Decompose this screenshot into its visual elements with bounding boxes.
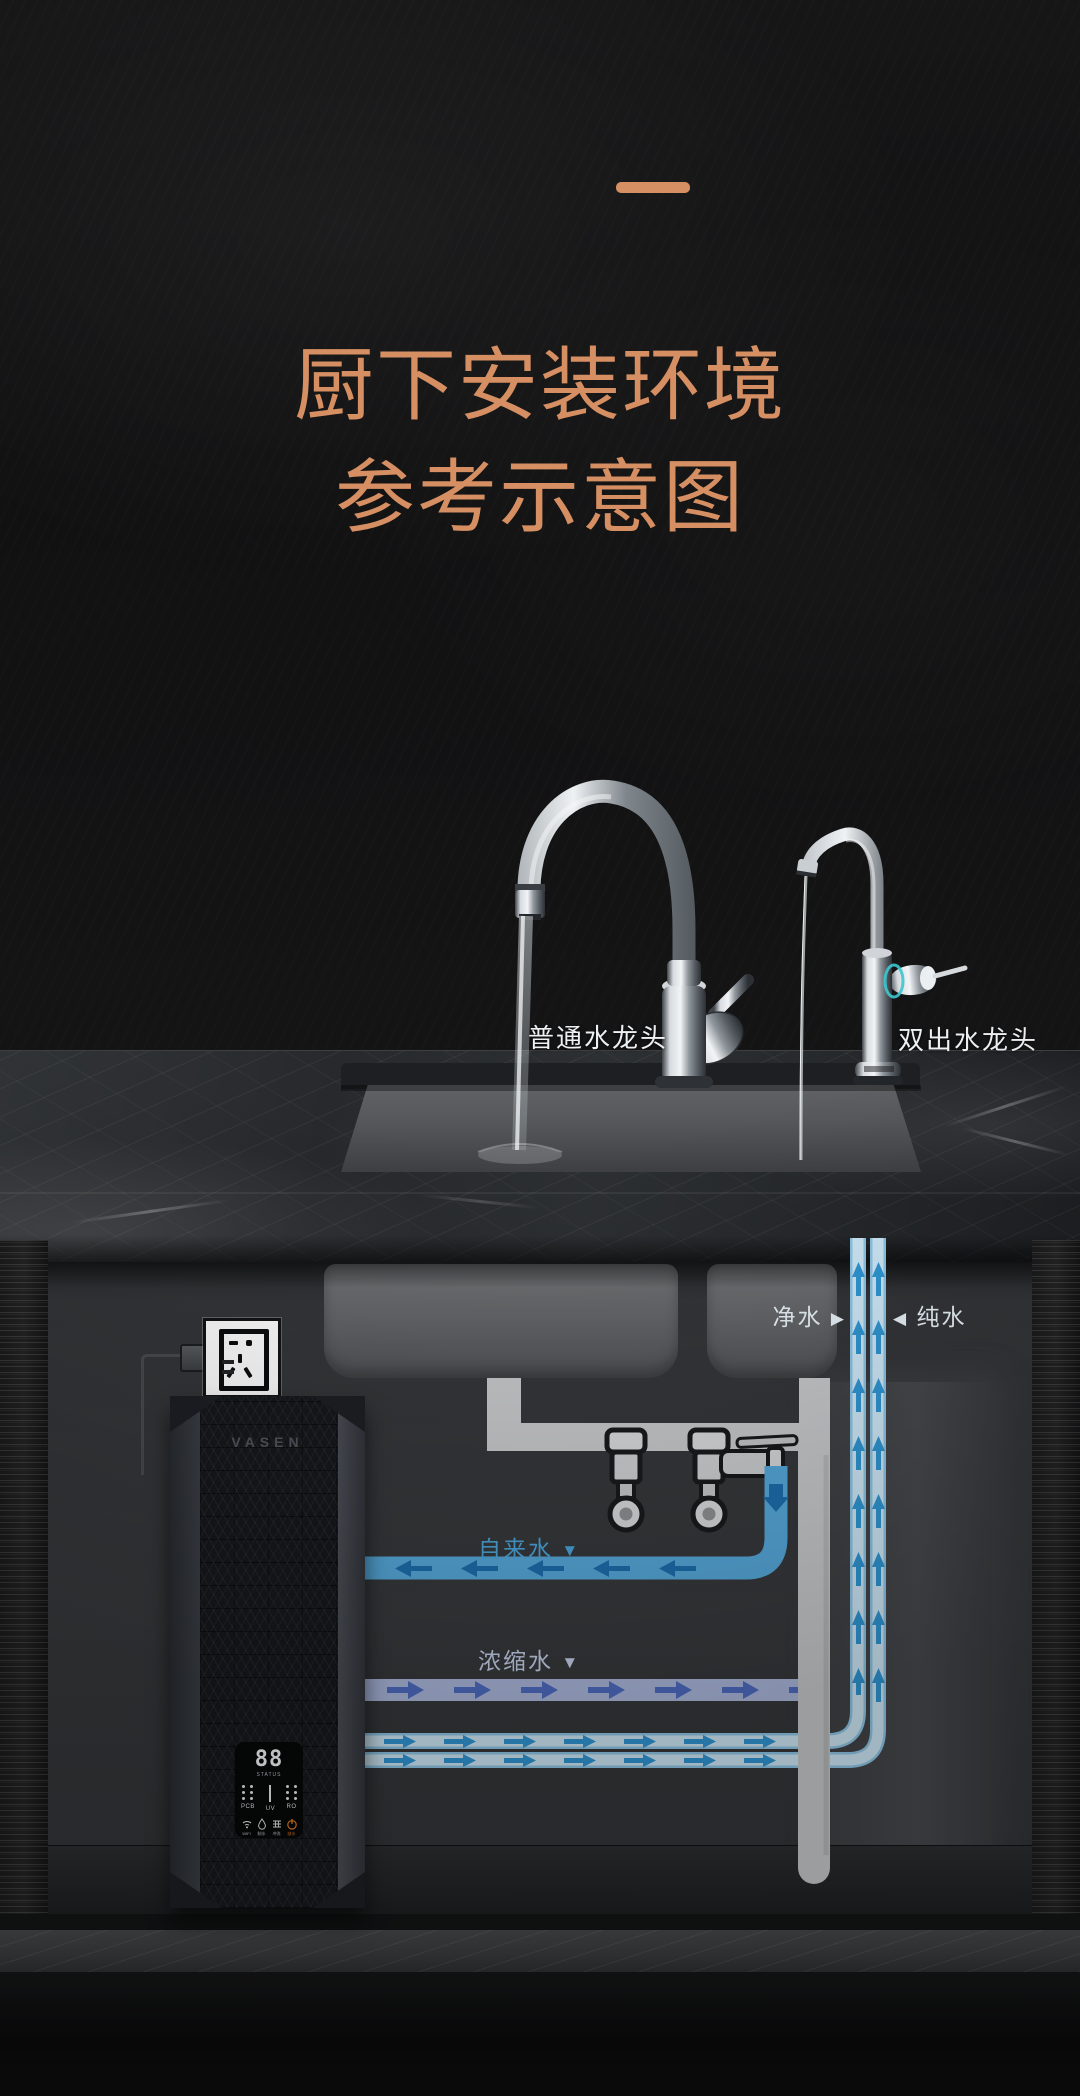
- status-make-water: 制水: [255, 1818, 268, 1837]
- indicator-pcb: PCB: [241, 1785, 255, 1812]
- label-tap-water: 自来水 ▼: [478, 1530, 580, 1564]
- indicator-uv: UV: [266, 1785, 275, 1812]
- purifier-left-bevel: [170, 1396, 200, 1908]
- pcb-dots: [242, 1785, 253, 1800]
- socket-faceplate: [219, 1329, 269, 1391]
- label-purified-water: 净水 ▶: [696, 1298, 846, 1332]
- uv-bar: [269, 1785, 271, 1802]
- water-purifier: VASEN 88 STATUS PCB UV RO: [170, 1396, 365, 1908]
- status-icon-row: WIFI 制水 冲洗 缺水: [240, 1818, 298, 1837]
- label-pure-water: ◀ 纯水: [893, 1298, 966, 1332]
- label-concentrate-water: 浓缩水 ▼: [478, 1642, 580, 1676]
- down-triangle-icon: ▼: [561, 1653, 580, 1672]
- display-caption: STATUS: [257, 1772, 282, 1778]
- status-alarm: 缺水: [285, 1818, 298, 1837]
- socket-hole: [246, 1340, 252, 1346]
- concentrate-pipe: [362, 1679, 812, 1701]
- down-triangle-icon: ▼: [561, 1541, 580, 1560]
- page: 厨下安装环境 参考示意图: [0, 0, 1080, 2096]
- faucet-connector-right: [690, 1430, 728, 1530]
- socket-hole: [238, 1354, 242, 1363]
- filter-icon: [271, 1818, 283, 1830]
- ro-dots: [286, 1785, 297, 1800]
- label-dual-faucet: 双出水龙头: [898, 1020, 1038, 1057]
- socket-hole: [243, 1367, 252, 1378]
- faucet-connector-left: [607, 1430, 645, 1530]
- water-stream-right: [800, 876, 806, 1160]
- alarm-icon: [286, 1818, 298, 1830]
- indicator-row: PCB UV RO: [241, 1785, 297, 1812]
- water-drop-icon: [256, 1818, 268, 1830]
- label-normal-faucet: 普通水龙头: [528, 1018, 668, 1055]
- left-triangle-icon: ◀: [893, 1309, 908, 1328]
- wall-socket: [203, 1318, 281, 1398]
- indicator-ro: RO: [286, 1785, 297, 1812]
- right-triangle-icon: ▶: [831, 1309, 846, 1328]
- socket-hole: [229, 1341, 238, 1345]
- plug-pin: [222, 1370, 234, 1374]
- display-digits: 88: [255, 1749, 284, 1771]
- status-wifi: WIFI: [240, 1818, 253, 1837]
- plug-pin: [222, 1360, 234, 1364]
- status-flush: 冲洗: [270, 1818, 283, 1837]
- brand-logo: VASEN: [170, 1434, 365, 1450]
- purifier-right-bevel: [338, 1396, 365, 1908]
- purifier-display: 88 STATUS PCB UV RO: [235, 1742, 303, 1838]
- wifi-icon: [241, 1818, 253, 1830]
